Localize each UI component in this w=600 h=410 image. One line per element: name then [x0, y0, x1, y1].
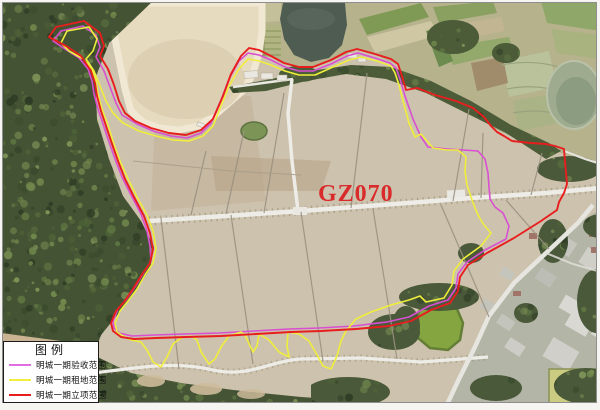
map-sheet: GZ070 图例 明城一期验收范围 明城一期租地范围 明城一期立项范围 [0, 0, 600, 410]
lease-line-swatch [9, 379, 31, 381]
legend-item-label: 明城一期验收范围 [36, 359, 106, 371]
legend-item-lease: 明城一期租地范围 [4, 372, 98, 387]
approval-line-swatch [9, 394, 31, 396]
legend-item-label: 明城一期立项范围 [36, 389, 106, 401]
acceptance-line-swatch [9, 364, 31, 366]
site-code-label: GZ070 [318, 182, 394, 206]
legend-item-label: 明城一期租地范围 [36, 374, 106, 386]
legend-item-approval: 明城一期立项范围 [4, 387, 98, 402]
legend-title: 图例 [4, 344, 98, 357]
small-teal-pond [241, 122, 267, 140]
legend: 图例 明城一期验收范围 明城一期租地范围 明城一期立项范围 [3, 341, 99, 403]
legend-item-acceptance: 明城一期验收范围 [4, 357, 98, 372]
